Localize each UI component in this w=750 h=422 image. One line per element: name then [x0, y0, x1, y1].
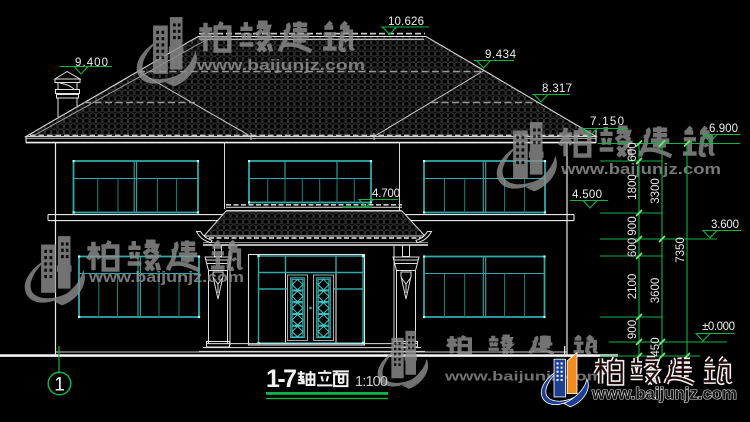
- svg-text:1800: 1800: [627, 174, 639, 200]
- svg-text:www.baijunjz.com: www.baijunjz.com: [560, 162, 721, 178]
- svg-text:2100: 2100: [627, 274, 639, 300]
- svg-text:4.500: 4.500: [572, 189, 602, 201]
- svg-text:7.150: 7.150: [590, 116, 624, 128]
- svg-text:600: 600: [627, 142, 639, 161]
- svg-text:10.626: 10.626: [388, 16, 424, 28]
- svg-text:±0.000: ±0.000: [702, 321, 735, 333]
- svg-text:www.baijunjz.com: www.baijunjz.com: [444, 370, 603, 384]
- svg-text:1-7: 1-7: [266, 365, 297, 393]
- svg-text:600: 600: [627, 238, 639, 257]
- svg-text:900: 900: [627, 216, 639, 235]
- svg-text:6.900: 6.900: [709, 123, 738, 135]
- svg-text:900: 900: [627, 320, 639, 339]
- svg-text:3600: 3600: [650, 278, 662, 304]
- svg-text:www.baijunjz.com: www.baijunjz.com: [196, 58, 365, 74]
- svg-text:8.317: 8.317: [542, 83, 572, 95]
- svg-text:1:100: 1:100: [355, 374, 388, 390]
- svg-text:www.baijunjz.com: www.baijunjz.com: [88, 270, 244, 286]
- svg-text:www.baijunjz.com: www.baijunjz.com: [591, 385, 737, 403]
- svg-text:3300: 3300: [650, 178, 662, 204]
- svg-text:450: 450: [650, 337, 662, 356]
- svg-text:9.400: 9.400: [75, 57, 108, 69]
- svg-text:1: 1: [54, 375, 65, 396]
- svg-text:9.434: 9.434: [485, 49, 517, 61]
- svg-text:7350: 7350: [675, 237, 687, 263]
- svg-text:3.600: 3.600: [711, 219, 739, 231]
- svg-text:4.700: 4.700: [372, 188, 400, 200]
